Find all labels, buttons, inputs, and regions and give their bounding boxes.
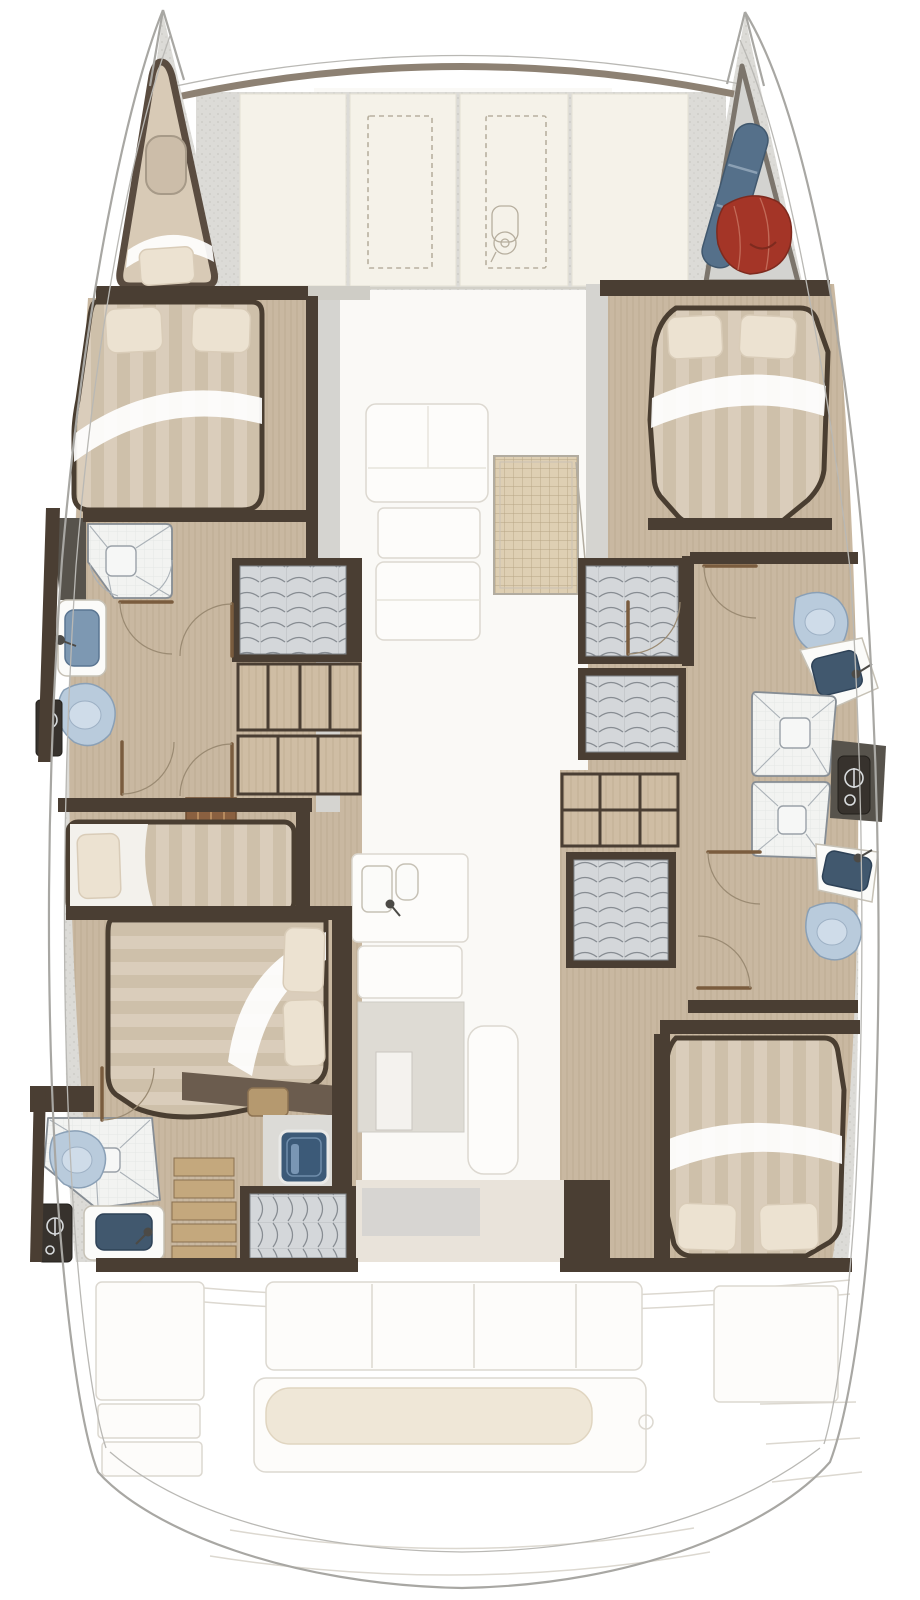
toilet-bowl — [805, 609, 835, 635]
pillow — [759, 1203, 819, 1251]
cockpit-step — [102, 1442, 202, 1476]
hanging-locker — [574, 860, 668, 960]
hatch-reflection — [291, 1144, 299, 1174]
port-aft-sink — [84, 1206, 164, 1260]
bench-cushion — [266, 1388, 592, 1444]
pillow — [191, 307, 251, 353]
cockpit-side-locker — [96, 1282, 204, 1400]
pillow — [739, 315, 797, 360]
pillow — [283, 999, 325, 1066]
step — [172, 1224, 236, 1242]
foredeck-panel — [240, 94, 346, 286]
hanging-locker — [586, 676, 678, 752]
pillow — [105, 307, 163, 354]
starboard-head-aft-wall — [688, 1000, 858, 1013]
saloon-island-seat — [468, 1026, 518, 1174]
starboard-inner-ledge — [586, 284, 608, 558]
port-berth-divider — [66, 906, 350, 920]
toilet-bowl — [62, 1147, 92, 1173]
starboard-aft-cabin-wall — [660, 1020, 860, 1034]
red-bag — [717, 196, 792, 274]
transom-curve-inner — [230, 1528, 694, 1549]
toilet-bowl — [69, 701, 101, 729]
port-escape-hatch — [280, 1131, 328, 1183]
saloon-bench — [376, 562, 480, 640]
bow-berth-pillow-group — [139, 246, 195, 286]
pillow — [667, 315, 723, 360]
saloon-sofa — [366, 404, 488, 502]
cockpit — [96, 1280, 862, 1575]
galley-oven — [376, 1052, 412, 1130]
port-mid-bulkhead — [58, 798, 312, 812]
starboard-shower-column — [838, 756, 870, 814]
center-aft-wall — [564, 1180, 610, 1262]
pillow — [139, 246, 195, 286]
port-berth-pillow-group — [77, 833, 121, 898]
port-cabin-foot-wall — [83, 510, 313, 522]
step — [174, 1180, 234, 1198]
shower-drain — [778, 806, 806, 834]
step — [172, 1246, 236, 1260]
nightstand — [248, 1088, 288, 1116]
port-aft-bulkhead — [96, 1258, 358, 1272]
foredeck-panel — [572, 94, 688, 286]
port-forward-sink — [56, 600, 106, 676]
cockpit-bench — [266, 1282, 642, 1370]
port-aft-hanging-locker — [250, 1194, 346, 1258]
port-cabin-side-wall — [306, 296, 318, 562]
port-hanging-locker — [240, 566, 346, 654]
companionway-hatch — [494, 456, 578, 594]
step — [174, 1158, 234, 1176]
pillow — [77, 833, 121, 898]
sink-basin — [65, 610, 99, 666]
toilet-bowl — [817, 919, 847, 945]
aft-panel-shadow — [362, 1188, 480, 1236]
pillow — [283, 927, 325, 992]
foredeck-panel — [460, 94, 568, 286]
transom-curve — [210, 1552, 710, 1575]
starboard-head-side-wall — [682, 556, 694, 666]
shower-drain — [106, 546, 136, 576]
port-shelf-unit-low — [238, 736, 360, 794]
hanging-locker — [586, 566, 678, 656]
galley-cabinet — [358, 946, 462, 998]
starboard-head-top-wall — [690, 552, 858, 564]
cockpit-step — [98, 1404, 200, 1438]
foredeck-panel — [350, 94, 456, 286]
saloon-table — [378, 508, 480, 558]
port-forward-bulkhead — [96, 286, 308, 300]
starboard-aft-side-wall — [654, 1034, 670, 1260]
step — [172, 1202, 236, 1220]
cockpit-side-seat — [714, 1286, 838, 1402]
starboard-forward-bulkhead — [600, 280, 830, 296]
transom-steps — [760, 1402, 862, 1482]
galley-sink-basin-small — [396, 864, 418, 900]
port-berth-side-wall — [296, 806, 310, 916]
bow-toilet-seat — [146, 136, 186, 194]
galley — [352, 854, 468, 1132]
pillow — [677, 1203, 737, 1251]
port-mid-side-wall — [332, 906, 352, 1192]
shower-drain — [780, 718, 810, 748]
catamaran-floor-plan — [0, 0, 920, 1600]
starboard-bed-foot-wall — [648, 518, 832, 530]
